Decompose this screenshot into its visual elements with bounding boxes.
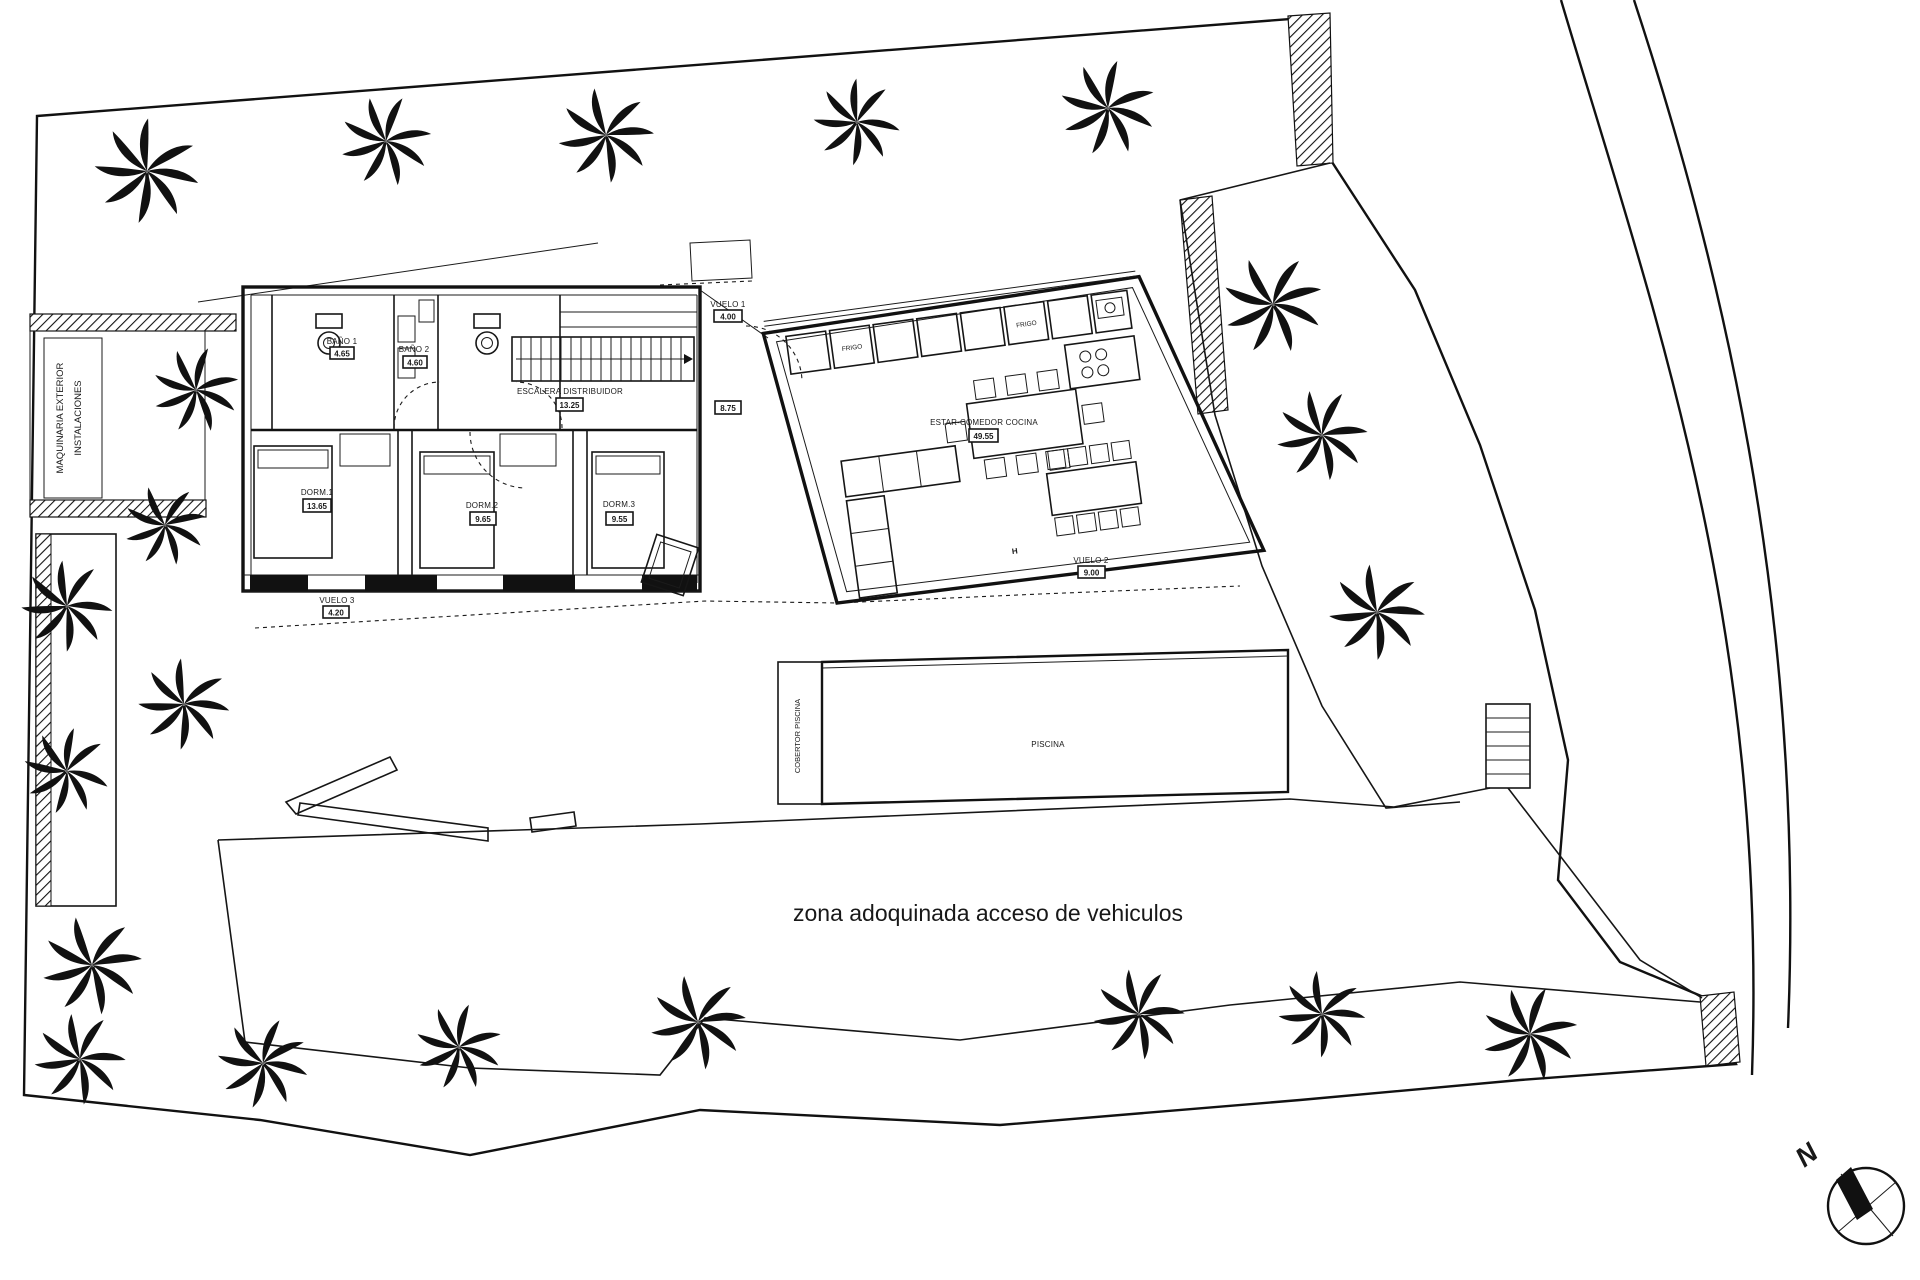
- room-area-bano1: 4.65: [334, 350, 350, 359]
- floor-plan-svg: zona adoquinada acceso de vehiculos MAQU…: [0, 0, 1920, 1280]
- pool-label: PISCINA: [1031, 740, 1065, 749]
- machinery-room-label: MAQUINARIA EXTERIOR: [55, 362, 66, 473]
- toilet-icon: [474, 314, 500, 354]
- palm-tree-icon: [547, 76, 663, 193]
- room-area-dorm2: 9.65: [475, 515, 491, 524]
- room-label-vuelo3: VUELO 3: [319, 596, 355, 605]
- palm-tree-icon: [1204, 236, 1340, 372]
- bedroom-wing: [243, 287, 802, 591]
- room-area-bano2: 4.60: [407, 359, 423, 368]
- room-label-dorm1: DORM.1: [301, 488, 334, 497]
- fridge-label: FRIGO: [1016, 320, 1037, 330]
- room-area-dorm1: 13.65: [307, 502, 328, 511]
- north-label: N: [1790, 1137, 1824, 1173]
- palm-tree-icon: [1077, 952, 1199, 1075]
- hatched-wall-band: [1288, 13, 1333, 166]
- site-plan-page: zona adoquinada acceso de vehiculos MAQU…: [0, 0, 1920, 1280]
- room-label-vuelo2: VUELO 2: [1073, 556, 1109, 565]
- bed: [592, 452, 664, 568]
- room-area-estar: 49.55: [973, 432, 994, 441]
- dining-table: [1044, 440, 1145, 536]
- pool-cover-label: COBERTOR PISCINA: [793, 699, 802, 773]
- palm-tree-icon: [1053, 52, 1163, 163]
- sofa: [841, 446, 973, 598]
- palm-tree-icon: [6, 710, 127, 831]
- palm-tree-icon: [135, 654, 233, 753]
- room-area-escalera: 13.25: [559, 401, 580, 410]
- room-area-vuelo3: 4.20: [328, 609, 344, 618]
- paved-zone: zona adoquinada acceso de vehiculos: [218, 788, 1702, 1075]
- sink-icon: [1096, 297, 1124, 318]
- palm-tree-icon: [143, 337, 248, 443]
- hall-area: 8.75: [720, 404, 736, 413]
- palm-tree-icon: [328, 82, 444, 198]
- terrace-walls: [286, 757, 576, 841]
- room-area-vuelo1: 4.00: [720, 313, 736, 322]
- living-wing: FRIGO FRIGO: [762, 259, 1264, 613]
- machinery-room-label-2: INSTALACIONES: [73, 380, 84, 455]
- north-compass-icon: N: [1790, 1137, 1904, 1244]
- palm-tree-icon: [4, 542, 130, 668]
- room-label-escalera: ESCALERA DISTRIBUIDOR: [517, 387, 623, 396]
- palm-tree-icon: [638, 962, 758, 1082]
- kitchen-island: [1065, 336, 1140, 389]
- pool: COBERTOR PISCINA PISCINA: [778, 650, 1288, 804]
- palm-tree-icon: [1262, 374, 1382, 495]
- hatched-wall-band: [1700, 992, 1740, 1066]
- staircase: [512, 337, 694, 381]
- palm-tree-icon: [199, 999, 327, 1127]
- paved-zone-label: zona adoquinada acceso de vehiculos: [793, 900, 1183, 926]
- room-area-dorm3: 9.55: [612, 515, 628, 524]
- room-label-vuelo1: VUELO 1: [710, 300, 746, 309]
- room-label-dorm3: DORM.3: [603, 500, 636, 509]
- palm-tree-icon: [408, 995, 510, 1097]
- road-edge-curves: [1561, 0, 1790, 1075]
- room-area-vuelo2: 9.00: [1084, 569, 1100, 578]
- palm-tree-icon: [28, 901, 156, 1029]
- fridge-label: FRIGO: [841, 343, 862, 353]
- room-label-estar: ESTAR-COMEDOR COCINA: [930, 418, 1038, 427]
- palm-tree-icon: [95, 118, 199, 223]
- palm-tree-icon: [1321, 557, 1431, 668]
- room-label-dorm2: DORM.2: [466, 501, 499, 510]
- room-label-bano1: BAÑO 1: [327, 337, 358, 346]
- bed: [420, 452, 494, 568]
- room-label-bano2: BAÑO 2: [399, 345, 430, 354]
- wall-marker: H: [1011, 546, 1018, 556]
- garden-steps: [1486, 704, 1530, 788]
- palm-tree-icon: [110, 471, 218, 580]
- palm-tree-icon: [796, 61, 917, 182]
- palm-tree-icon: [1273, 965, 1370, 1063]
